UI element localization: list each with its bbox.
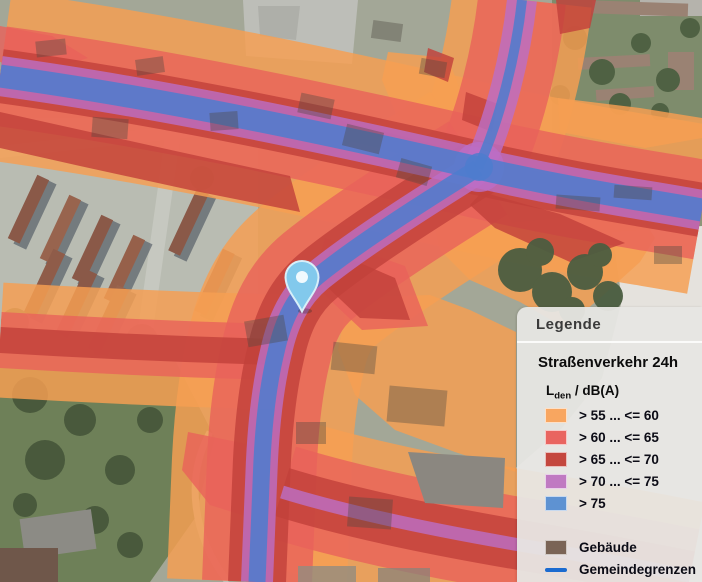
legend-class-row-70-75: > 70 ... <= 75 (545, 474, 702, 489)
buildings-color-swatch (545, 540, 567, 555)
color-swatch-55-60 (545, 408, 567, 423)
legend-separator (517, 341, 702, 343)
building-block (378, 568, 430, 582)
legend-unit-label: Lden / dB(A) (546, 383, 702, 398)
boundary-line-icon (545, 562, 567, 577)
noise-map-viewer: Legende Straßenverkehr 24h Lden / dB(A) … (0, 0, 702, 582)
color-swatch-70-75 (545, 474, 567, 489)
legend-spacer (517, 518, 702, 540)
legend-boundaries-row: Gemeindegrenzen (545, 562, 702, 577)
legend-class-row-55-60: > 55 ... <= 60 (545, 408, 702, 423)
legend-title: Legende (536, 316, 702, 333)
legend-class-row-65-70: > 65 ... <= 70 (545, 452, 702, 467)
legend-buildings-row: Gebäude (545, 540, 702, 555)
legend-section-title: Straßenverkehr 24h (538, 354, 702, 371)
color-swatch-60-65 (545, 430, 567, 445)
color-swatch-over-75 (545, 496, 567, 511)
legend-class-row-60-65: > 60 ... <= 65 (545, 430, 702, 445)
legend-class-row-over-75: > 75 (545, 496, 702, 511)
building-block (298, 566, 356, 582)
color-swatch-65-70 (545, 452, 567, 467)
legend-panel: Legende Straßenverkehr 24h Lden / dB(A) … (517, 307, 702, 582)
